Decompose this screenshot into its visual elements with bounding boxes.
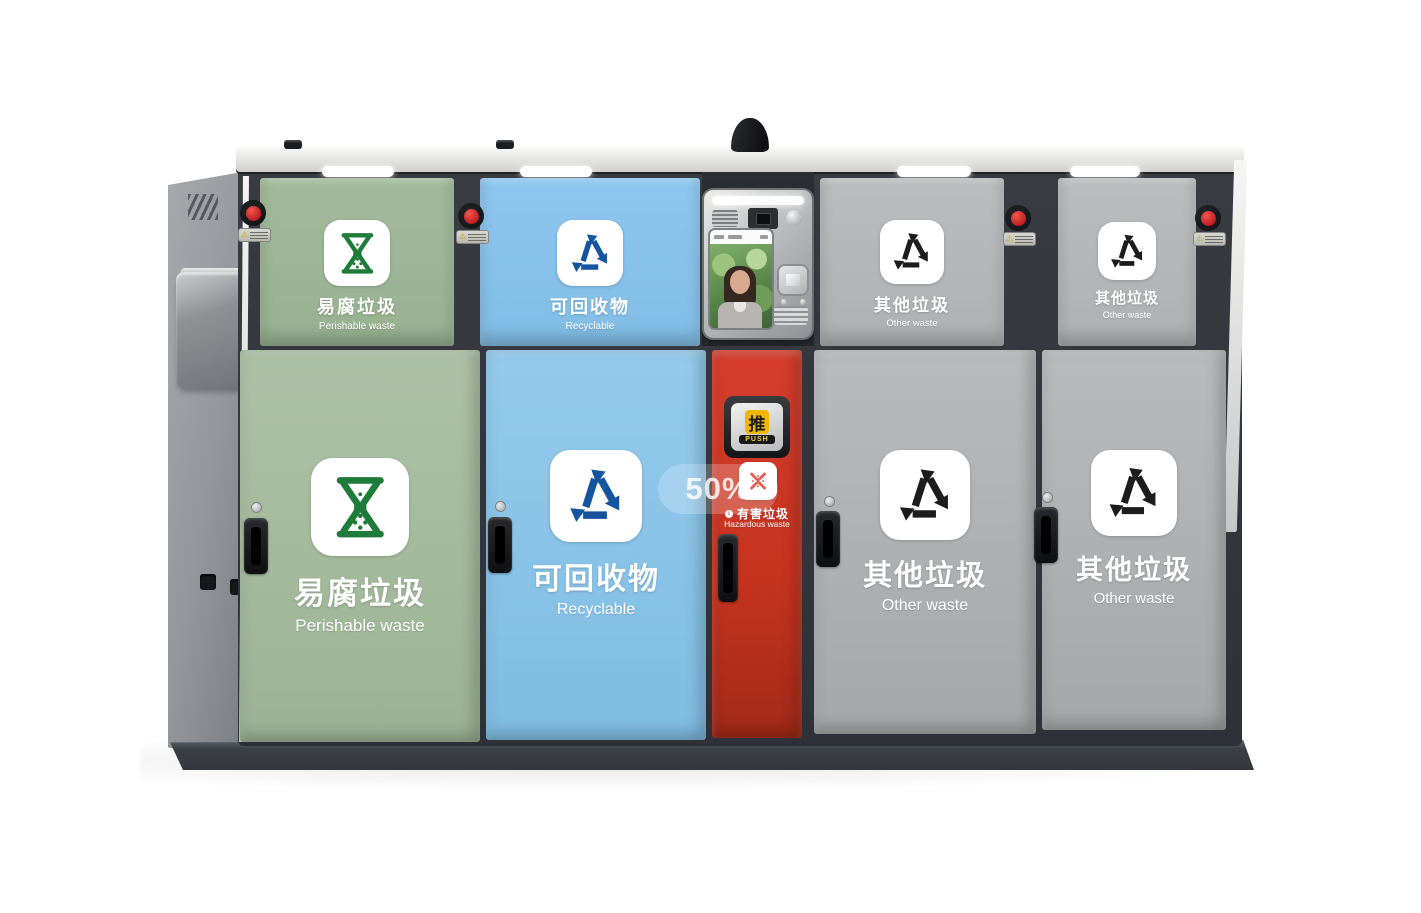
- terminal-speaker-vent: [712, 210, 738, 227]
- chute-light: [520, 166, 592, 177]
- warning-sticker: ⚠: [1004, 233, 1035, 245]
- emergency-button[interactable]: [1005, 205, 1031, 231]
- door-handle[interactable]: [488, 517, 512, 573]
- other-label-zh: 其他垃圾: [1076, 548, 1192, 587]
- recyclable-label-zh: 可回收物: [550, 293, 630, 319]
- top-flap-other-1[interactable]: 其他垃圾 Other waste: [820, 178, 1004, 346]
- lock-screw: [496, 502, 505, 511]
- qr-scanner-window[interactable]: [779, 266, 807, 294]
- recyclable-label-en: Recyclable: [566, 321, 615, 332]
- door-handle[interactable]: [816, 511, 840, 567]
- recycle-arrows-icon: [557, 220, 623, 286]
- watermark: 50%: [658, 464, 778, 514]
- warning-sticker: ⚠: [457, 231, 488, 243]
- person-face: [730, 270, 750, 294]
- side-vent-grille: [188, 194, 218, 220]
- other-label-zh: 其他垃圾: [1095, 287, 1159, 308]
- cabinet-side-panel: [168, 172, 242, 764]
- door-handle[interactable]: [1034, 507, 1058, 563]
- lock-screw: [1043, 493, 1052, 502]
- push-flap[interactable]: 推 PUSH: [724, 396, 790, 458]
- screen-status-bar: [710, 230, 772, 244]
- hazardous-label-en: Hazardous waste: [712, 519, 802, 529]
- door-handle[interactable]: [718, 534, 738, 602]
- top-flap-perishable[interactable]: 易腐垃圾 Perishable waste: [260, 178, 454, 346]
- chute-light: [322, 166, 394, 177]
- screw: [800, 299, 806, 305]
- lock-screw: [825, 497, 834, 506]
- top-flap-recyclable[interactable]: 可回收物 Recyclable: [480, 178, 700, 346]
- triangle-arrows-icon: [880, 220, 944, 284]
- roof-bolt: [496, 140, 514, 149]
- recyclable-label-zh: 可回收物: [532, 554, 660, 598]
- face-recognition-view: [710, 244, 772, 328]
- antenna-dome: [731, 118, 769, 152]
- other-label-en: Other waste: [886, 318, 937, 329]
- door-other-1[interactable]: 其他垃圾 Other waste: [814, 350, 1036, 734]
- other-label-zh: 其他垃圾: [874, 291, 950, 316]
- emergency-button[interactable]: [458, 203, 484, 229]
- warning-sticker: ⚠: [1194, 233, 1225, 245]
- warning-sticker: ⚠: [239, 229, 270, 241]
- top-flap-other-2[interactable]: 其他垃圾 Other waste: [1058, 178, 1196, 346]
- recyclable-label-en: Recyclable: [557, 601, 635, 619]
- other-label-en: Other waste: [882, 597, 968, 615]
- chute-light: [1070, 166, 1140, 177]
- hourglass-icon: [311, 458, 409, 556]
- camera-lens: [756, 213, 771, 225]
- terminal-light-bar: [712, 196, 804, 205]
- terminal-sensor: [786, 210, 802, 226]
- triangle-arrows-icon: [1098, 222, 1156, 280]
- recycle-arrows-icon: [550, 450, 642, 542]
- other-label-en: Other waste: [1094, 590, 1175, 607]
- push-label-zh: 推: [745, 410, 769, 434]
- push-label-en: PUSH: [739, 435, 774, 444]
- emergency-button[interactable]: [1195, 205, 1221, 231]
- door-handle[interactable]: [244, 518, 268, 574]
- terminal-screen[interactable]: [710, 230, 772, 328]
- triangle-arrows-icon: [1091, 450, 1177, 536]
- screw: [781, 299, 787, 305]
- door-recyclable[interactable]: 可回收物 Recyclable: [486, 350, 706, 740]
- push-plate: 推 PUSH: [731, 403, 783, 451]
- perishable-label-zh: 易腐垃圾: [294, 568, 426, 613]
- side-vent-hole: [200, 574, 216, 590]
- perishable-label-en: Perishable waste: [319, 321, 395, 332]
- product-photo-waste-station: 易腐垃圾 Perishable waste 可回收物 Recyclable 其他…: [0, 0, 1421, 913]
- door-perishable[interactable]: 易腐垃圾 Perishable waste: [240, 350, 480, 742]
- warning-triangle-icon: ⚠: [1006, 235, 1013, 243]
- lock-screw: [252, 503, 261, 512]
- roof-bolt: [284, 140, 302, 149]
- other-label-zh: 其他垃圾: [863, 552, 987, 594]
- other-label-en: Other waste: [1103, 310, 1152, 320]
- perishable-label-zh: 易腐垃圾: [317, 293, 397, 319]
- terminal-camera-icon: [748, 208, 778, 229]
- emergency-button[interactable]: [240, 200, 266, 226]
- chute-light: [897, 166, 971, 177]
- triangle-arrows-icon: [880, 450, 970, 540]
- warning-triangle-icon: ⚠: [459, 233, 466, 241]
- door-other-2[interactable]: 其他垃圾 Other waste: [1042, 350, 1226, 730]
- warning-triangle-icon: ⚠: [241, 231, 248, 239]
- terminal-speaker-grille: [774, 306, 808, 325]
- warning-triangle-icon: ⚠: [1196, 235, 1203, 243]
- watermark-text: 50%: [685, 471, 750, 507]
- perishable-label-en: Perishable waste: [295, 616, 424, 636]
- hourglass-icon: [324, 220, 390, 286]
